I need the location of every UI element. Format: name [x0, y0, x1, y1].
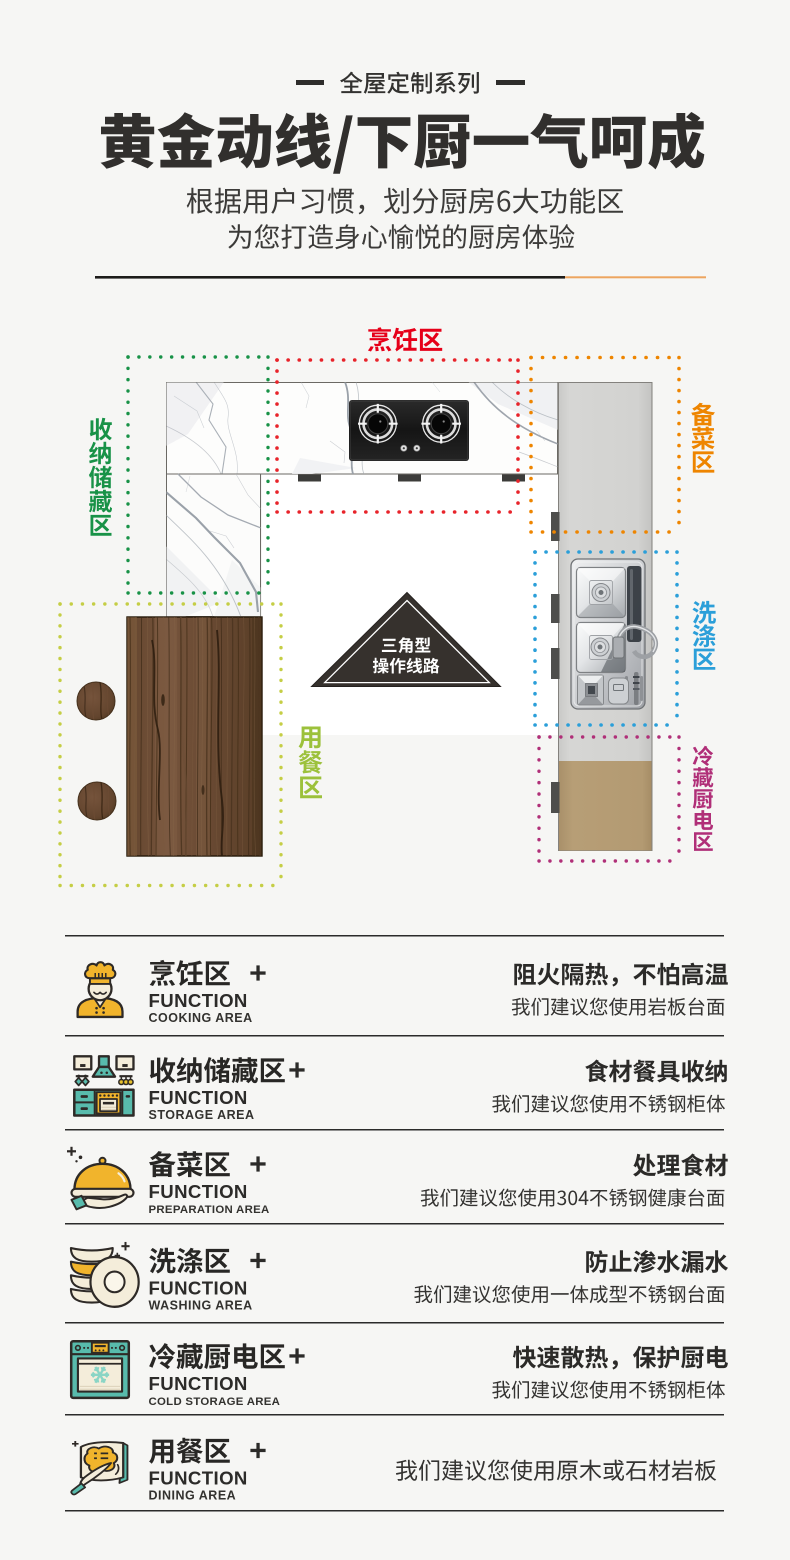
svg-text:FUNCTION: FUNCTION [149, 1087, 248, 1108]
svg-text:DINING AREA: DINING AREA [149, 1489, 237, 1503]
svg-text:COOKING AREA: COOKING AREA [149, 1011, 253, 1025]
svg-text:FUNCTION: FUNCTION [149, 1278, 248, 1299]
svg-text:FUNCTION: FUNCTION [149, 1373, 248, 1394]
svg-text:PREPARATION AREA: PREPARATION AREA [149, 1204, 270, 1216]
svg-text:WASHING AREA: WASHING AREA [149, 1299, 253, 1313]
svg-text:FUNCTION: FUNCTION [149, 990, 248, 1011]
svg-text:FUNCTION: FUNCTION [149, 1181, 248, 1202]
svg-text:COLD STORAGE AREA: COLD STORAGE AREA [149, 1396, 281, 1408]
svg-text:FUNCTION: FUNCTION [149, 1468, 248, 1489]
svg-text:STORAGE AREA: STORAGE AREA [149, 1108, 255, 1122]
